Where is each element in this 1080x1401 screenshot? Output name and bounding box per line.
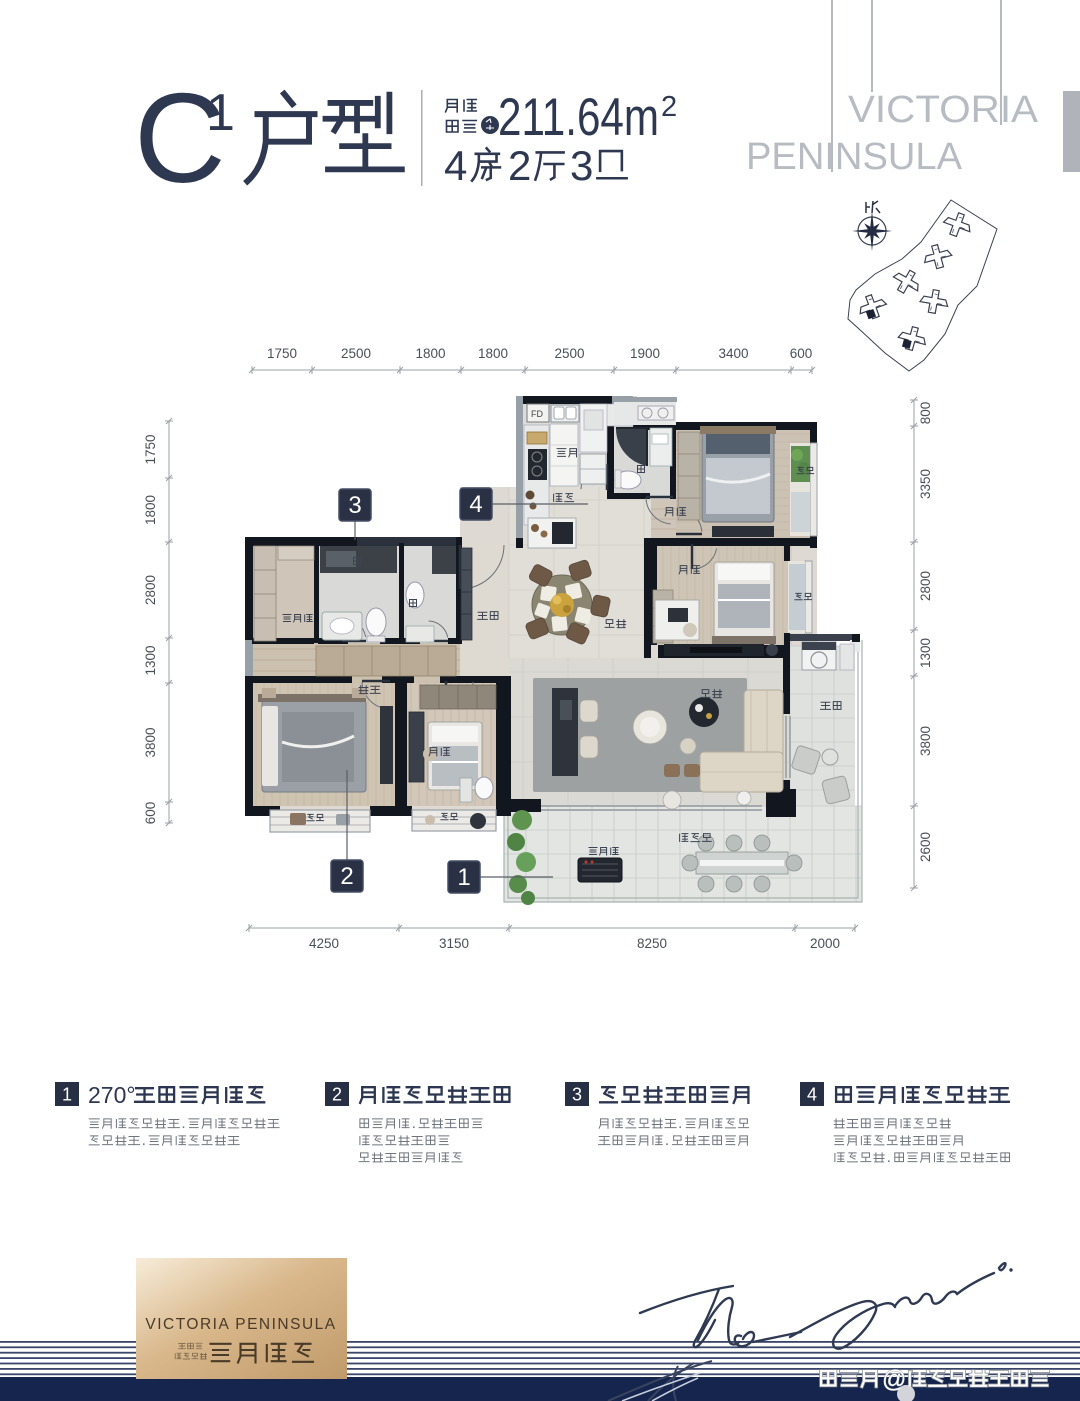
svg-text:2800: 2800 [918, 571, 933, 601]
svg-text:3: 3 [572, 1085, 582, 1105]
svg-text:1750: 1750 [143, 434, 158, 464]
svg-text:2000: 2000 [810, 936, 840, 951]
svg-text:3800: 3800 [143, 727, 158, 757]
svg-text:800: 800 [918, 402, 933, 425]
svg-text:1800: 1800 [143, 495, 158, 525]
svg-text:4250: 4250 [309, 936, 339, 951]
svg-text:FD: FD [531, 409, 543, 419]
svg-text:2: 2 [508, 142, 531, 189]
svg-text:PENINSULA: PENINSULA [746, 136, 963, 178]
svg-text:1: 1 [62, 1085, 72, 1105]
svg-text:3150: 3150 [439, 936, 469, 951]
svg-text:2: 2 [340, 863, 353, 890]
svg-text:1800: 1800 [478, 346, 508, 361]
svg-text:2800: 2800 [143, 575, 158, 605]
svg-text:2600: 2600 [918, 832, 933, 862]
svg-text:600: 600 [143, 802, 158, 825]
svg-text:2500: 2500 [341, 346, 371, 361]
svg-text:2500: 2500 [554, 346, 584, 361]
svg-text:3: 3 [570, 142, 593, 189]
svg-text:270°: 270° [88, 1082, 136, 1108]
svg-text:1900: 1900 [630, 346, 660, 361]
svg-text:4: 4 [807, 1085, 817, 1105]
svg-text:2: 2 [661, 91, 677, 123]
svg-text:3350: 3350 [918, 469, 933, 499]
svg-text:3400: 3400 [718, 346, 748, 361]
svg-text:3800: 3800 [918, 726, 933, 756]
svg-text:8250: 8250 [637, 936, 667, 951]
svg-text:211.64m: 211.64m [498, 88, 659, 147]
svg-text:1750: 1750 [267, 346, 297, 361]
svg-text:4: 4 [444, 142, 467, 189]
svg-text:VICTORIA: VICTORIA [848, 89, 1039, 131]
svg-text:1: 1 [457, 864, 470, 891]
svg-text:3: 3 [348, 492, 361, 519]
svg-text:1800: 1800 [415, 346, 445, 361]
svg-text:2: 2 [332, 1085, 342, 1105]
svg-text:1300: 1300 [918, 638, 933, 668]
svg-text:VICTORIA PENINSULA: VICTORIA PENINSULA [145, 1316, 336, 1333]
svg-text:1: 1 [206, 84, 235, 142]
svg-text:4: 4 [469, 491, 482, 518]
svg-text:1300: 1300 [143, 645, 158, 675]
svg-text:600: 600 [790, 346, 813, 361]
